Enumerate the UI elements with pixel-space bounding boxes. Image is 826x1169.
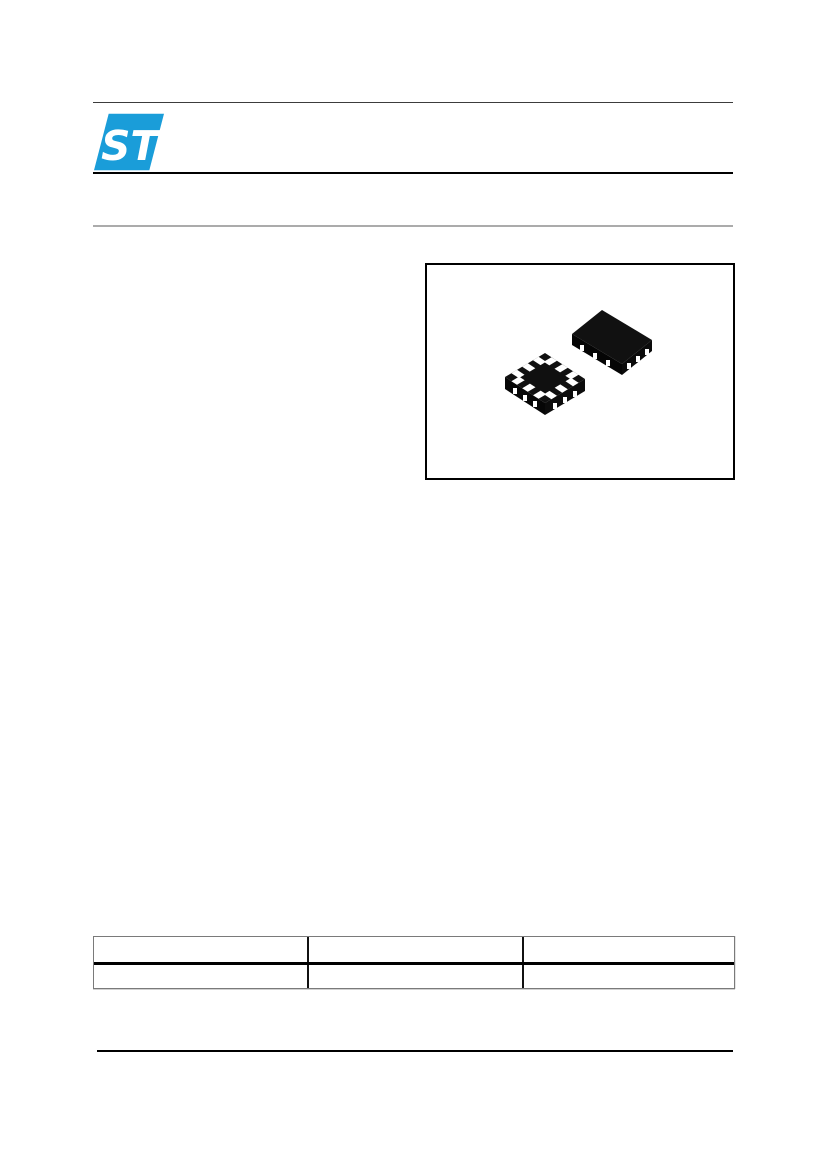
pad	[513, 388, 517, 394]
qfn-bottom-view-image	[505, 353, 585, 415]
summary-table	[93, 936, 735, 989]
pad	[606, 360, 610, 366]
pad	[563, 397, 567, 403]
st-logo-graphic: ST	[94, 113, 164, 171]
pad	[593, 353, 597, 359]
footer-rule	[97, 1050, 733, 1052]
pad	[533, 401, 537, 407]
table-header-row	[94, 937, 734, 965]
table-header-cell	[309, 937, 524, 962]
table-header-cell	[94, 937, 309, 962]
qfn-top-view-image	[572, 310, 652, 375]
st-logo: ST	[94, 113, 164, 171]
st-logo-letters: ST	[101, 122, 161, 170]
pad	[627, 363, 631, 369]
table-header-cell	[524, 937, 734, 962]
pad	[580, 345, 584, 351]
table-cell	[309, 965, 524, 988]
table-cell	[524, 965, 734, 988]
pad	[553, 403, 557, 409]
pad	[523, 395, 527, 401]
pad	[645, 349, 649, 355]
top-rule	[93, 102, 733, 103]
table-cell	[94, 965, 309, 988]
table-row	[94, 965, 734, 988]
package-photo	[427, 265, 733, 478]
datasheet-page: ST	[0, 0, 826, 1169]
pad	[573, 391, 577, 397]
subheader-rule	[93, 225, 733, 227]
pad	[636, 356, 640, 362]
header-rule	[93, 172, 733, 174]
package-photo-box	[425, 263, 735, 480]
